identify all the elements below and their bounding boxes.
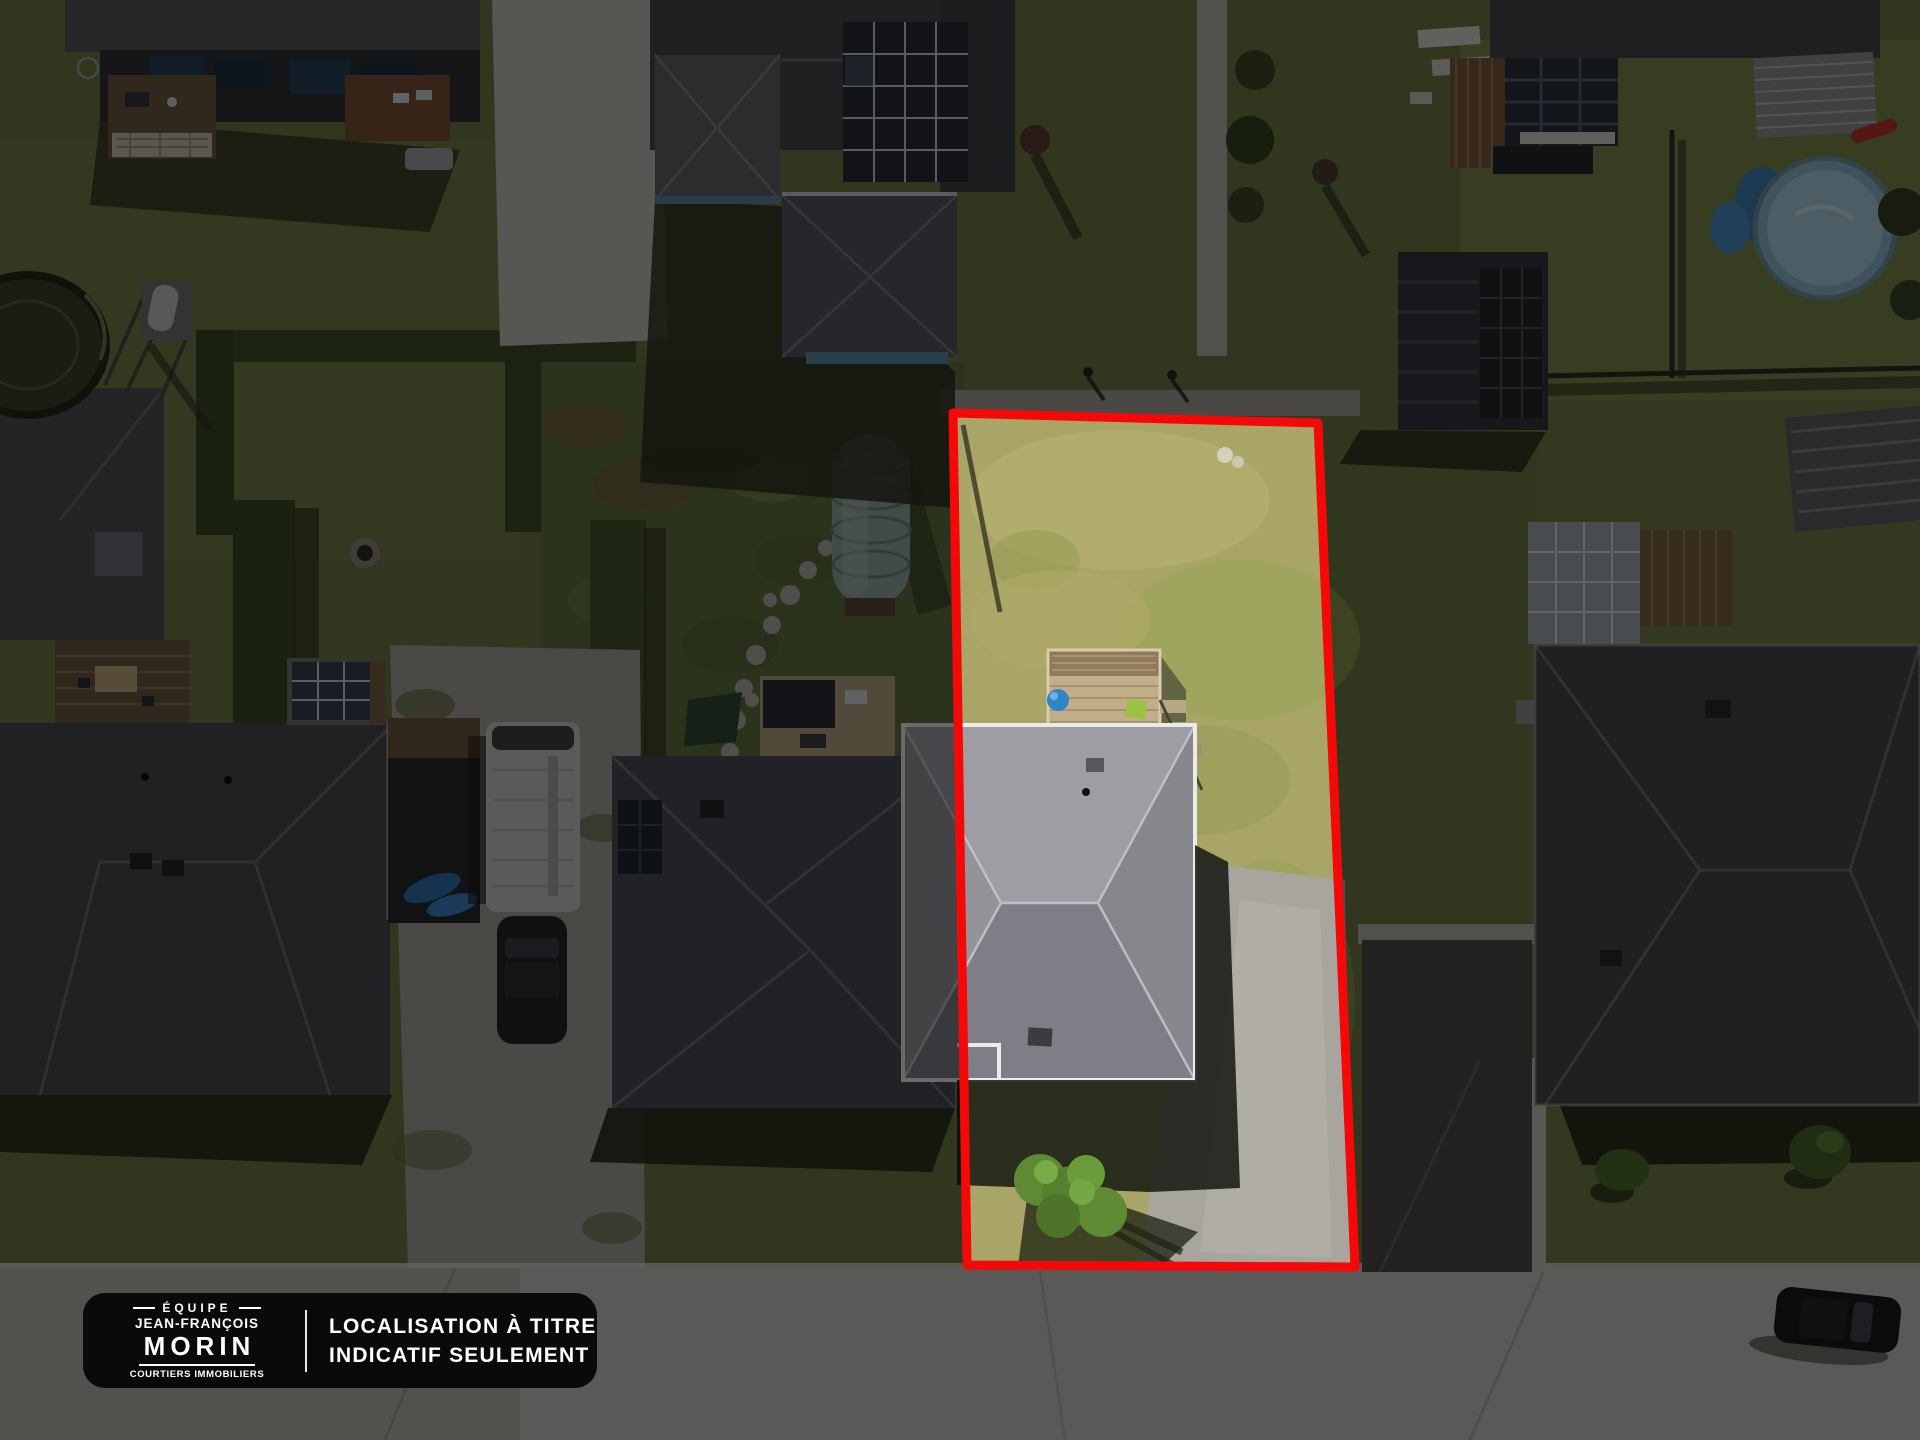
logo-team-row: ÉQUIPE bbox=[113, 1302, 281, 1314]
brand-logo: ÉQUIPE JEAN-FRANÇOIS MORIN COURTIERS IMM… bbox=[113, 1302, 281, 1379]
aerial-scene bbox=[0, 0, 1920, 1440]
badge-vertical-divider bbox=[305, 1310, 307, 1372]
disclaimer-text: LOCALISATION À TITRE INDICATIF SEULEMENT bbox=[329, 1312, 596, 1370]
logo-last-name: MORIN bbox=[113, 1333, 286, 1359]
watermark-badge: ÉQUIPE JEAN-FRANÇOIS MORIN COURTIERS IMM… bbox=[83, 1293, 597, 1388]
logo-subtitle: COURTIERS IMMOBILIERS bbox=[113, 1370, 281, 1380]
logo-divider-rule bbox=[139, 1364, 255, 1366]
roof-vent bbox=[1028, 1027, 1053, 1046]
logo-first-name: JEAN-FRANÇOIS bbox=[113, 1317, 281, 1331]
chimney bbox=[1086, 758, 1104, 772]
green-chair bbox=[1125, 699, 1147, 720]
bird bbox=[1082, 788, 1090, 796]
highlighted-lot bbox=[903, 413, 1360, 1267]
disclaimer-line-2: INDICATIF SEULEMENT bbox=[329, 1341, 596, 1370]
aerial-property-photo: ÉQUIPE JEAN-FRANÇOIS MORIN COURTIERS IMM… bbox=[0, 0, 1920, 1440]
logo-team-prefix: ÉQUIPE bbox=[162, 1302, 231, 1314]
blue-barrel bbox=[1047, 689, 1069, 711]
dash-left bbox=[133, 1307, 155, 1309]
disclaimer-line-1: LOCALISATION À TITRE bbox=[329, 1312, 596, 1341]
dash-right bbox=[239, 1307, 261, 1309]
